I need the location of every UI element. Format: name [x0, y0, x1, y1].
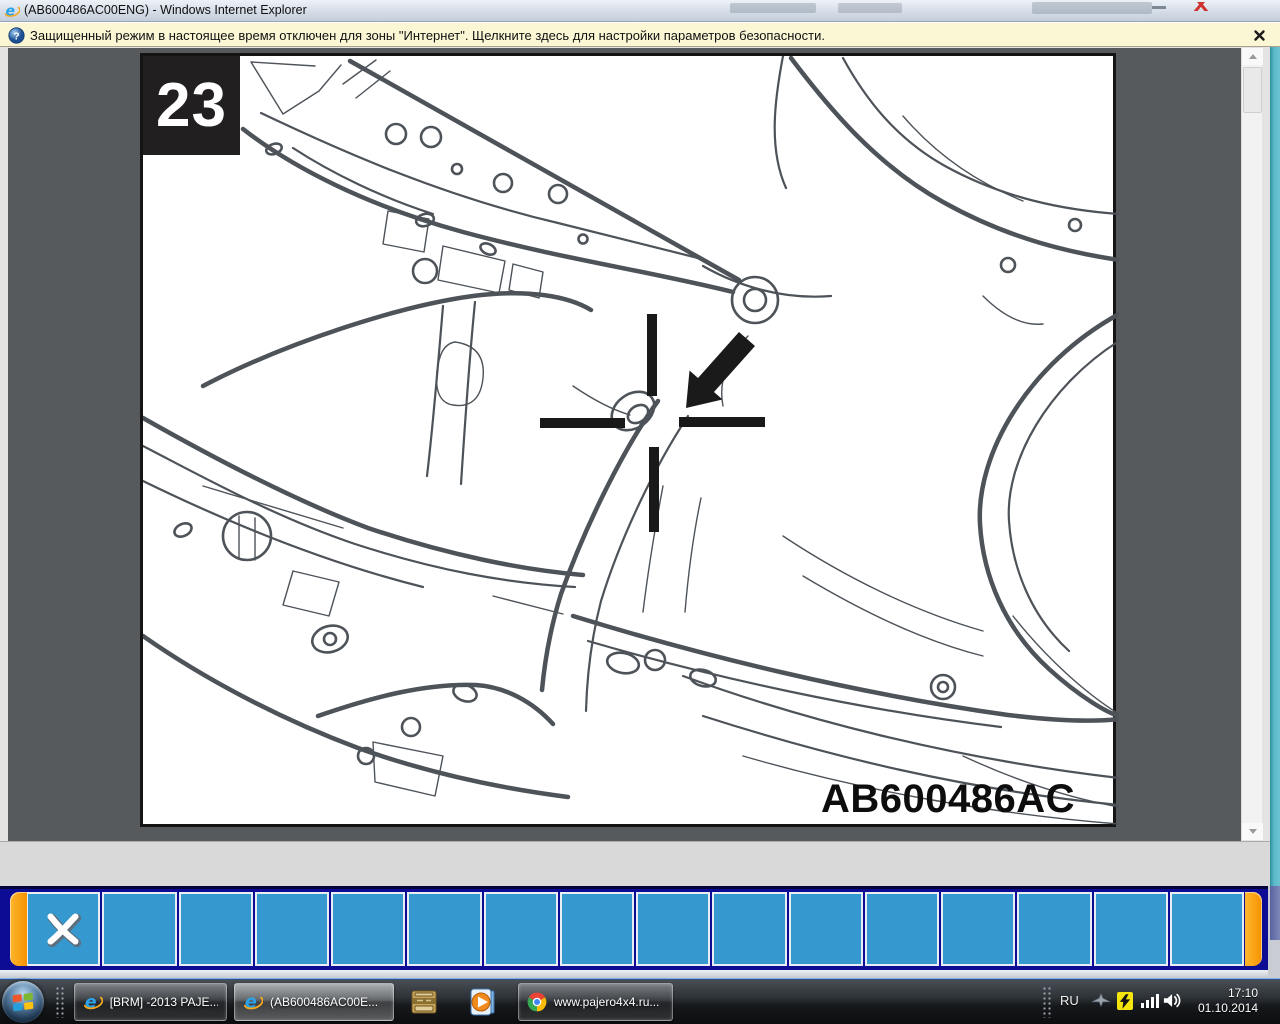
- x-cut-icon: [42, 908, 84, 950]
- toolbar-button-9[interactable]: [636, 892, 710, 966]
- toolbar-button-5[interactable]: [331, 892, 405, 966]
- scrollbar-thumb[interactable]: [1243, 67, 1262, 113]
- figure-code: AB600486AC: [821, 777, 1075, 822]
- triangle-up-icon: [1249, 54, 1257, 59]
- shield-question-icon: ?: [8, 27, 25, 44]
- toolbar-button-4[interactable]: [255, 892, 329, 966]
- start-button[interactable]: [2, 981, 44, 1023]
- language-indicator[interactable]: RU: [1060, 993, 1079, 1008]
- svg-text:?: ?: [13, 31, 19, 42]
- chrome-icon: [527, 992, 547, 1012]
- toolbar-right-cap: [1245, 892, 1262, 966]
- figure-number: 23: [156, 70, 227, 141]
- taskbar-button-label: www.pajero4x4.ru...: [554, 995, 659, 1009]
- pointer-arrow: [686, 332, 755, 408]
- toolbar-button-11[interactable]: [789, 892, 863, 966]
- scroll-down-button[interactable]: [1242, 823, 1263, 840]
- tray-date: 01.10.2014: [1190, 1001, 1258, 1016]
- tray-time: 17:10: [1190, 986, 1258, 1001]
- tray-plane-icon[interactable]: [1091, 992, 1111, 1013]
- toolbar-button-12[interactable]: [865, 892, 939, 966]
- blue-toolbar-buttons: [25, 892, 1245, 966]
- taskbar-button-ie-doc[interactable]: e (AB600486AC00E...: [234, 983, 394, 1021]
- toolbar-button-8[interactable]: [560, 892, 634, 966]
- toolbar-bottom-edge: [0, 970, 1268, 978]
- internet-explorer-icon: e: [243, 992, 263, 1012]
- taskbar-button-ie-brm[interactable]: e [BRM] -2013 PAJE...: [74, 983, 227, 1021]
- taskbar-button-label: (AB600486AC00E...: [270, 995, 378, 1009]
- tray-expand-grip[interactable]: [1042, 986, 1052, 1018]
- viewer-toolbar: [0, 886, 1268, 970]
- background-window-artifact: [1032, 2, 1152, 14]
- taskbar-grip: [55, 986, 65, 1018]
- background-window-edge: [1270, 47, 1280, 886]
- toolbar-button-15[interactable]: [1094, 892, 1168, 966]
- internet-explorer-icon: e: [83, 992, 103, 1012]
- toolbar-button-2[interactable]: [102, 892, 176, 966]
- triangle-down-icon: [1249, 829, 1257, 834]
- infobar-close-icon[interactable]: [1253, 29, 1266, 42]
- toolbar-button-16[interactable]: [1170, 892, 1244, 966]
- minimize-icon: [1152, 6, 1166, 9]
- tray-clock[interactable]: 17:10 01.10.2014: [1190, 986, 1258, 1016]
- volume-icon[interactable]: [1163, 992, 1183, 1014]
- window-title: (AB600486AC00ENG) - Windows Internet Exp…: [24, 3, 307, 17]
- toolbar-button-10[interactable]: [712, 892, 786, 966]
- browser-bottom-strip: [0, 841, 1270, 886]
- taskbar-button-label: [BRM] -2013 PAJE...: [110, 995, 218, 1009]
- parts-catalog-icon[interactable]: [407, 985, 441, 1019]
- scroll-up-button[interactable]: [1242, 48, 1263, 65]
- figure-number-box: 23: [143, 56, 240, 155]
- security-infobar[interactable]: ? Защищенный режим в настоящее время отк…: [0, 22, 1280, 47]
- toolbar-button-7[interactable]: [484, 892, 558, 966]
- background-window-artifact: [838, 3, 902, 13]
- background-close-icon[interactable]: [1190, 0, 1212, 11]
- background-window-artifact: [730, 3, 816, 13]
- windows-media-player-icon[interactable]: [467, 985, 501, 1019]
- toolbar-button-13[interactable]: [941, 892, 1015, 966]
- tray-lightning-icon[interactable]: [1117, 992, 1133, 1010]
- browser-content-area: 23 AB600486AC: [0, 47, 1280, 886]
- network-signal-icon[interactable]: [1141, 992, 1159, 1013]
- internet-explorer-icon: e: [4, 3, 20, 19]
- windows-taskbar: e [BRM] -2013 PAJE... e (AB600486AC00E..…: [0, 978, 1280, 1024]
- toolbar-button-14[interactable]: [1017, 892, 1091, 966]
- toolbar-button-1[interactable]: [26, 892, 100, 966]
- windows-flag-icon: [13, 993, 34, 1011]
- background-window-edge-lower: [1270, 886, 1280, 940]
- toolbar-left-cap: [10, 892, 27, 966]
- toolbar-button-6[interactable]: [407, 892, 481, 966]
- infobar-message[interactable]: Защищенный режим в настоящее время отклю…: [30, 28, 825, 43]
- body-structure-diagram: [143, 56, 1119, 830]
- toolbar-button-3[interactable]: [179, 892, 253, 966]
- window-titlebar: e (AB600486AC00ENG) - Windows Internet E…: [0, 0, 1280, 22]
- manual-figure-page: 23 AB600486AC: [140, 53, 1116, 827]
- vertical-scrollbar[interactable]: [1241, 48, 1262, 840]
- taskbar-button-chrome[interactable]: www.pajero4x4.ru...: [518, 983, 673, 1021]
